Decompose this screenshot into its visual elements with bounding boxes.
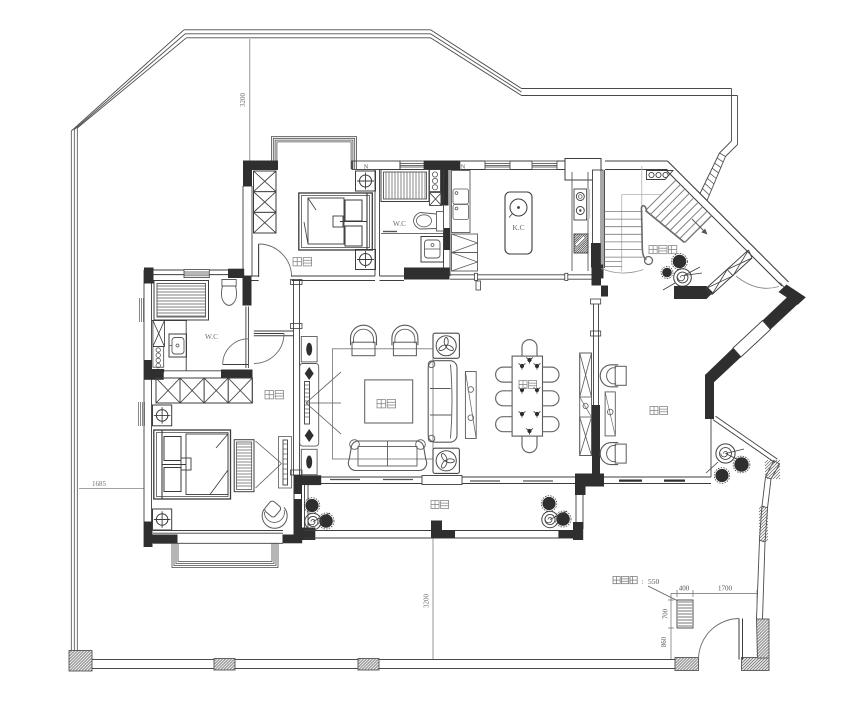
svg-text:3200: 3200 bbox=[239, 92, 247, 107]
svg-text:W.C: W.C bbox=[205, 332, 218, 341]
svg-text:W.C: W.C bbox=[393, 219, 406, 228]
svg-text::: : bbox=[642, 578, 644, 586]
svg-text:400: 400 bbox=[679, 585, 690, 593]
svg-text:1700: 1700 bbox=[718, 585, 733, 593]
svg-text:N: N bbox=[364, 164, 369, 171]
svg-text:860: 860 bbox=[661, 636, 668, 647]
svg-text:1685: 1685 bbox=[92, 480, 107, 488]
svg-text:550: 550 bbox=[648, 577, 660, 586]
svg-text:700: 700 bbox=[663, 608, 670, 619]
svg-text:3200: 3200 bbox=[423, 594, 431, 609]
svg-text:K.C: K.C bbox=[512, 223, 524, 232]
